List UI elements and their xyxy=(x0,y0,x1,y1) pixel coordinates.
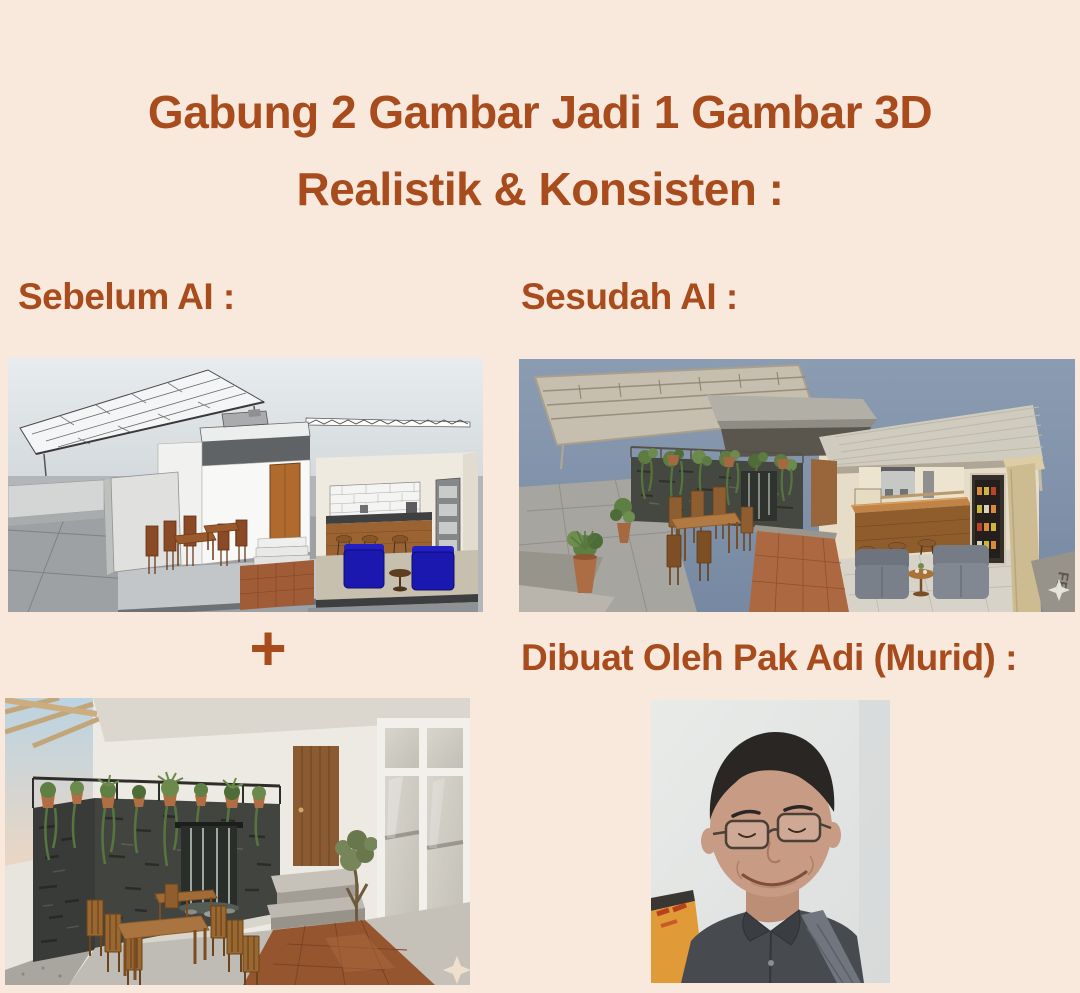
photo-bg-shadow xyxy=(859,700,890,983)
label-before-ai: Sebelum AI : xyxy=(18,276,235,318)
creator-photo-image xyxy=(651,700,890,983)
plus-sign: + xyxy=(208,608,328,688)
label-after-ai: Sesudah AI : xyxy=(521,276,738,318)
after-render-image: FE xyxy=(519,359,1075,612)
reference-waterfall xyxy=(175,822,243,917)
label-creator: Dibuat Oleh Pak Adi (Murid) : xyxy=(521,637,1017,679)
render-door xyxy=(811,459,837,527)
reference-door xyxy=(289,742,343,870)
page-title-line2: Realistik & Konsisten : xyxy=(0,151,1080,228)
reference-photo-image xyxy=(5,698,470,985)
before-sketch-image xyxy=(8,358,483,612)
promo-poster: Gabung 2 Gambar Jadi 1 Gambar 3D Realist… xyxy=(0,0,1080,993)
page-title: Gabung 2 Gambar Jadi 1 Gambar 3D Realist… xyxy=(0,74,1080,228)
sketch-bar-interior xyxy=(308,452,478,612)
page-title-line1: Gabung 2 Gambar Jadi 1 Gambar 3D xyxy=(0,74,1080,151)
reference-steps xyxy=(267,868,365,930)
photo-button xyxy=(768,960,774,966)
render-terracotta-path xyxy=(749,525,849,612)
sketch-walkway xyxy=(240,560,314,610)
